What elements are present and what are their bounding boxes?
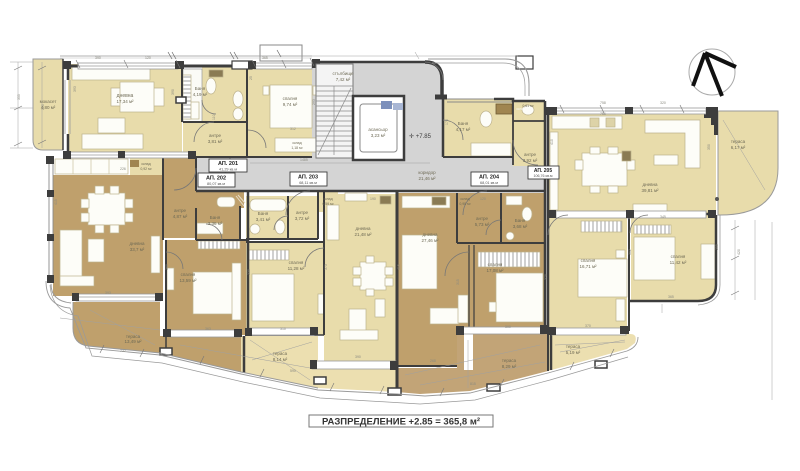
svg-text:13,49 м²: 13,49 м² <box>124 339 142 344</box>
svg-text:антре: антре <box>209 133 222 138</box>
svg-text:спалня: спалня <box>671 254 686 259</box>
svg-text:склад: склад <box>460 197 469 201</box>
svg-text:39,81 м²: 39,81 м² <box>641 188 659 193</box>
svg-text:0,59 м²: 0,59 м² <box>322 202 334 206</box>
svg-text:РАЗПРЕДЕЛЕНИЕ +2.85 = 365,8 м²: РАЗПРЕДЕЛЕНИЕ +2.85 = 365,8 м² <box>322 417 480 428</box>
svg-text:антре: антре <box>476 216 489 221</box>
svg-text:365: 365 <box>668 295 674 299</box>
svg-text:дневна: дневна <box>130 241 145 246</box>
svg-text:спалня: спалня <box>488 262 503 267</box>
svg-text:355: 355 <box>17 94 21 100</box>
svg-text:Баня: Баня <box>515 218 526 223</box>
svg-text:106,76 кв.м: 106,76 кв.м <box>534 174 553 178</box>
svg-text:390: 390 <box>95 56 101 60</box>
svg-text:255: 255 <box>715 244 719 250</box>
svg-text:спалня: спалня <box>181 272 196 277</box>
svg-text:дневна: дневна <box>643 182 658 187</box>
svg-text:1,18 м²: 1,18 м² <box>291 146 303 150</box>
svg-text:0,92 м²: 0,92 м² <box>140 167 152 171</box>
svg-text:27,46 м²: 27,46 м² <box>421 238 439 243</box>
svg-text:365: 365 <box>262 56 268 60</box>
svg-text:16,71 м²: 16,71 м² <box>579 264 597 269</box>
svg-text:21,46 м²: 21,46 м² <box>418 176 436 181</box>
svg-text:293: 293 <box>312 99 316 105</box>
svg-text:226: 226 <box>120 167 126 171</box>
svg-text:13,59 м²: 13,59 м² <box>179 278 197 283</box>
svg-text:тераса: тераса <box>273 351 288 356</box>
svg-text:Баня: Баня <box>258 211 269 216</box>
svg-text:390: 390 <box>171 89 175 95</box>
svg-text:спалня: спалня <box>289 260 304 265</box>
svg-text:393: 393 <box>73 86 77 92</box>
svg-text:Баня: Баня <box>195 86 206 91</box>
svg-text:41,29 кв.м: 41,29 кв.м <box>219 168 237 172</box>
svg-text:мокасет: мокасет <box>40 99 57 104</box>
svg-text:312: 312 <box>290 127 296 131</box>
svg-text:дневна: дневна <box>423 232 438 237</box>
svg-text:3,72 м²: 3,72 м² <box>295 216 310 221</box>
svg-text:120: 120 <box>480 197 486 201</box>
svg-text:3,41 м²: 3,41 м² <box>256 217 271 222</box>
svg-text:302: 302 <box>628 249 632 255</box>
svg-text:8,29 м²: 8,29 м² <box>502 364 517 369</box>
svg-text:410: 410 <box>550 139 554 145</box>
svg-text:дневна: дневна <box>356 226 371 231</box>
svg-text:320: 320 <box>660 101 666 105</box>
svg-text:80,07 кв.м: 80,07 кв.м <box>207 182 225 186</box>
svg-text:345: 345 <box>660 215 666 219</box>
svg-text:тераса: тераса <box>566 344 581 349</box>
svg-text:17,08 м²: 17,08 м² <box>486 268 504 273</box>
svg-text:коридор: коридор <box>418 170 436 175</box>
svg-text:315: 315 <box>456 279 460 285</box>
svg-text:склад: склад <box>292 141 301 145</box>
svg-text:330: 330 <box>247 269 251 275</box>
svg-text:373: 373 <box>324 264 328 270</box>
svg-text:✛ +7.85: ✛ +7.85 <box>409 133 432 140</box>
svg-text:190: 190 <box>370 197 376 201</box>
svg-text:268: 268 <box>430 359 436 363</box>
svg-text:антре: антре <box>174 208 187 213</box>
svg-text:5,73 м²: 5,73 м² <box>475 222 490 227</box>
svg-text:393: 393 <box>105 291 111 295</box>
svg-text:спалня: спалня <box>581 258 596 263</box>
svg-text:АП. 204: АП. 204 <box>479 175 500 181</box>
svg-text:756: 756 <box>600 112 606 116</box>
svg-text:3,92 м²: 3,92 м² <box>523 158 538 163</box>
svg-text:склад: склад <box>323 197 332 201</box>
svg-text:тераса: тераса <box>502 358 517 363</box>
svg-text:3,23 м²: 3,23 м² <box>371 133 386 138</box>
svg-text:350: 350 <box>707 144 711 150</box>
svg-text:спалня: спалня <box>283 96 298 101</box>
svg-text:3,81 м²: 3,81 м² <box>208 139 223 144</box>
svg-text:4,19 м²: 4,19 м² <box>193 92 208 97</box>
svg-text:1485: 1485 <box>300 158 308 162</box>
svg-text:5,19 м²: 5,19 м² <box>566 350 581 355</box>
svg-text:антре: антре <box>296 210 309 215</box>
svg-text:склад: склад <box>141 162 150 166</box>
svg-text:Баня: Баня <box>458 121 469 126</box>
svg-text:АП. 201: АП. 201 <box>218 161 238 167</box>
svg-text:тераса: тераса <box>731 139 746 144</box>
svg-text:590: 590 <box>290 369 296 373</box>
svg-text:68,01 кв.м: 68,01 кв.м <box>480 181 498 185</box>
svg-text:7,42 м²: 7,42 м² <box>336 77 351 82</box>
svg-text:АП. 203: АП. 203 <box>298 175 318 181</box>
svg-text:390: 390 <box>505 325 511 329</box>
svg-text:11,28 м²: 11,28 м² <box>288 266 305 271</box>
svg-text:Баня: Баня <box>210 215 221 220</box>
svg-text:120: 120 <box>145 56 151 60</box>
svg-text:4,87 м²: 4,87 м² <box>173 214 188 219</box>
svg-text:21,48 м²: 21,48 м² <box>354 232 372 237</box>
svg-text:310: 310 <box>280 327 286 331</box>
svg-text:415: 415 <box>54 199 58 205</box>
svg-text:415: 415 <box>397 264 401 270</box>
svg-text:17,34 м²: 17,34 м² <box>116 99 134 104</box>
svg-text:758: 758 <box>600 101 606 105</box>
svg-text:363: 363 <box>205 327 211 331</box>
svg-text:360: 360 <box>165 264 169 270</box>
svg-text:370: 370 <box>585 324 591 328</box>
svg-text:стълбище: стълбище <box>333 71 354 76</box>
svg-text:асансьор: асансьор <box>368 127 388 132</box>
svg-text:175: 175 <box>445 119 449 125</box>
svg-text:815: 815 <box>470 382 476 386</box>
svg-text:4,80 м²: 4,80 м² <box>41 105 56 110</box>
svg-text:25: 25 <box>249 76 253 80</box>
svg-text:390: 390 <box>355 355 361 359</box>
svg-text:370: 370 <box>544 274 548 280</box>
svg-text:110: 110 <box>212 114 216 120</box>
svg-text:33,7 м²: 33,7 м² <box>130 247 145 252</box>
svg-text:732: 732 <box>120 349 126 353</box>
svg-text:68,11 кв.м: 68,11 кв.м <box>299 181 317 185</box>
svg-text:0,98 м²: 0,98 м² <box>459 202 471 206</box>
svg-text:3,36 м²: 3,36 м² <box>208 221 223 226</box>
svg-text:8,14 м²: 8,14 м² <box>273 357 288 362</box>
svg-text:АП. 202: АП. 202 <box>206 176 226 182</box>
svg-text:420: 420 <box>737 249 741 255</box>
svg-text:6,17 м²: 6,17 м² <box>731 145 746 150</box>
svg-text:3,68 м²: 3,68 м² <box>513 224 528 229</box>
svg-text:4,17 м²: 4,17 м² <box>456 127 471 132</box>
svg-text:11,42 м²: 11,42 м² <box>670 260 687 265</box>
svg-text:9,74 м²: 9,74 м² <box>283 102 298 107</box>
svg-text:0,61 м²: 0,61 м² <box>522 104 534 108</box>
svg-text:антре: антре <box>524 152 537 157</box>
